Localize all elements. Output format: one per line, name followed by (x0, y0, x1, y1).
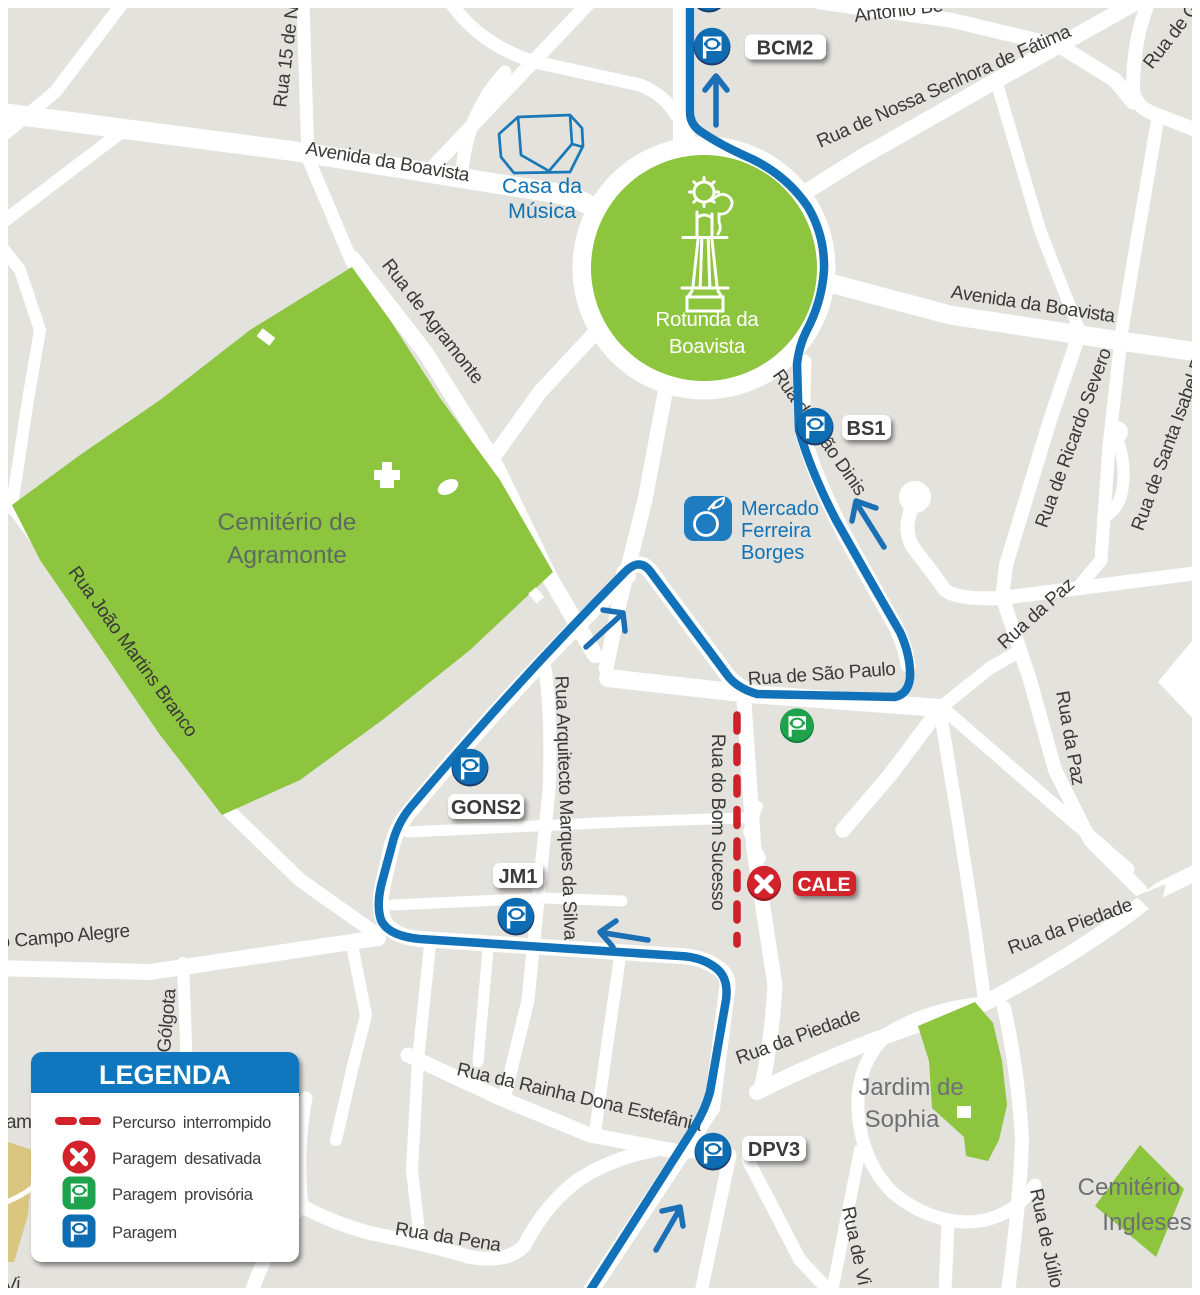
svg-text:BS1: BS1 (847, 418, 886, 440)
svg-text:Ferreira: Ferreira (741, 520, 812, 542)
svg-text:Cemitério: Cemitério (1078, 1174, 1181, 1201)
svg-text:Sophia: Sophia (865, 1106, 940, 1133)
svg-text:CALE: CALE (797, 874, 850, 896)
svg-text:GONS2: GONS2 (451, 797, 521, 819)
svg-text:Mercado: Mercado (741, 498, 819, 520)
svg-text:Ingleses: Ingleses (1102, 1209, 1191, 1236)
svg-text:Rotunda da: Rotunda da (655, 308, 759, 331)
svg-text:Percurso interrompido: Percurso interrompido (112, 1114, 271, 1132)
svg-text:am: am (6, 1112, 32, 1133)
svg-text:Boavista: Boavista (669, 335, 746, 358)
svg-text:Música: Música (508, 199, 576, 223)
svg-text:Paragem: Paragem (112, 1224, 177, 1242)
svg-text:Casa da: Casa da (502, 174, 582, 198)
svg-text:BCM2: BCM2 (757, 38, 814, 60)
svg-text:Borges: Borges (741, 542, 804, 564)
svg-text:Rua do Bom Sucesso: Rua do Bom Sucesso (707, 734, 728, 911)
svg-text:Cemitério de: Cemitério de (218, 509, 357, 536)
svg-text:Agramonte: Agramonte (227, 542, 347, 569)
svg-text:DPV3: DPV3 (748, 1139, 800, 1161)
svg-text:JM1: JM1 (499, 866, 538, 888)
svg-text:Paragem provisória: Paragem provisória (112, 1186, 254, 1204)
svg-text:LEGENDA: LEGENDA (99, 1060, 231, 1090)
svg-text:Paragem desativada: Paragem desativada (112, 1150, 262, 1168)
svg-text:Jardim de: Jardim de (858, 1074, 963, 1101)
